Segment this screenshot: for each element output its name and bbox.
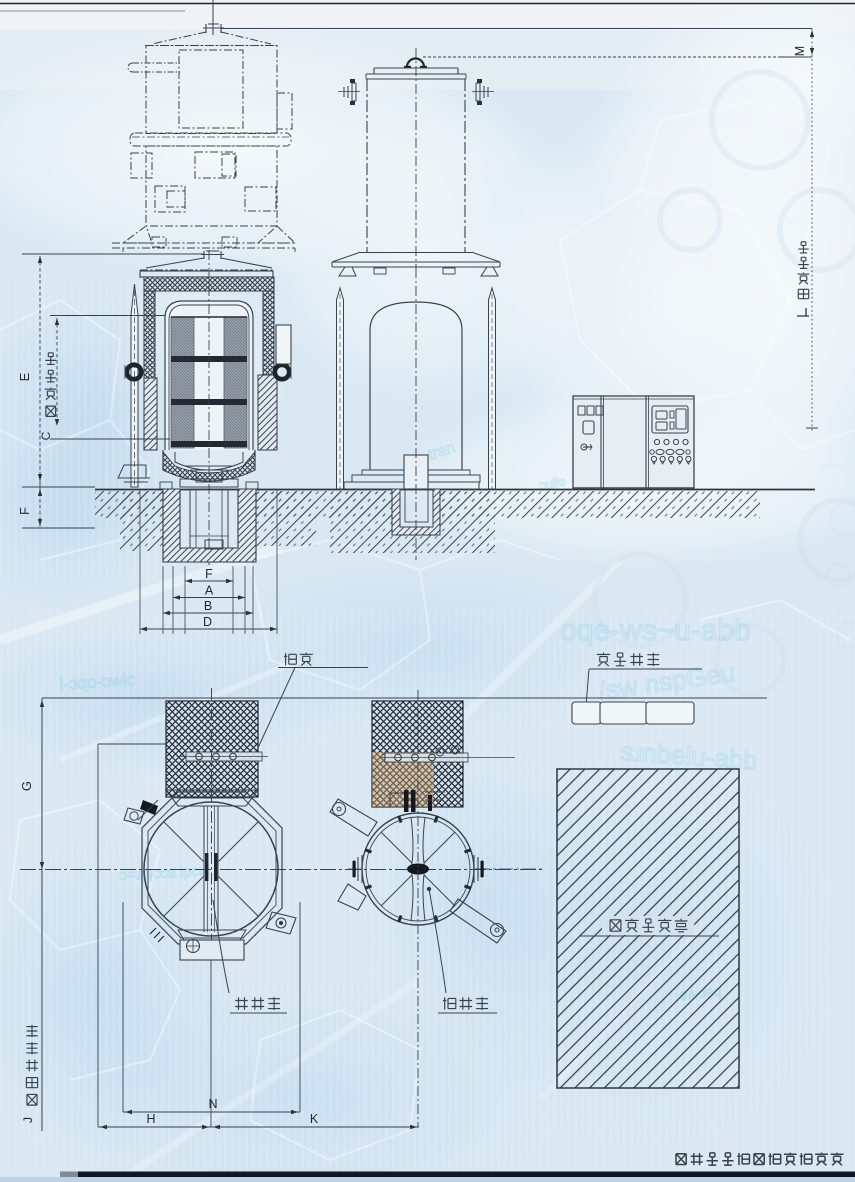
- svg-text:A: A: [205, 584, 214, 598]
- svg-text:oqe-ws~u-abb: oqe-ws~u-abb: [560, 614, 751, 647]
- svg-text:E: E: [17, 372, 32, 381]
- svg-text:J: J: [21, 1117, 35, 1123]
- svg-text:C: C: [39, 431, 53, 440]
- svg-text:F: F: [17, 507, 32, 515]
- svg-text:B: B: [204, 599, 212, 613]
- svg-text:M: M: [793, 46, 807, 56]
- svg-text:K: K: [310, 1112, 319, 1126]
- svg-text:H: H: [146, 1112, 155, 1126]
- svg-text:F: F: [205, 567, 213, 581]
- svg-text:D: D: [203, 615, 212, 629]
- svg-text:G: G: [19, 781, 34, 791]
- svg-text:N: N: [208, 1097, 217, 1111]
